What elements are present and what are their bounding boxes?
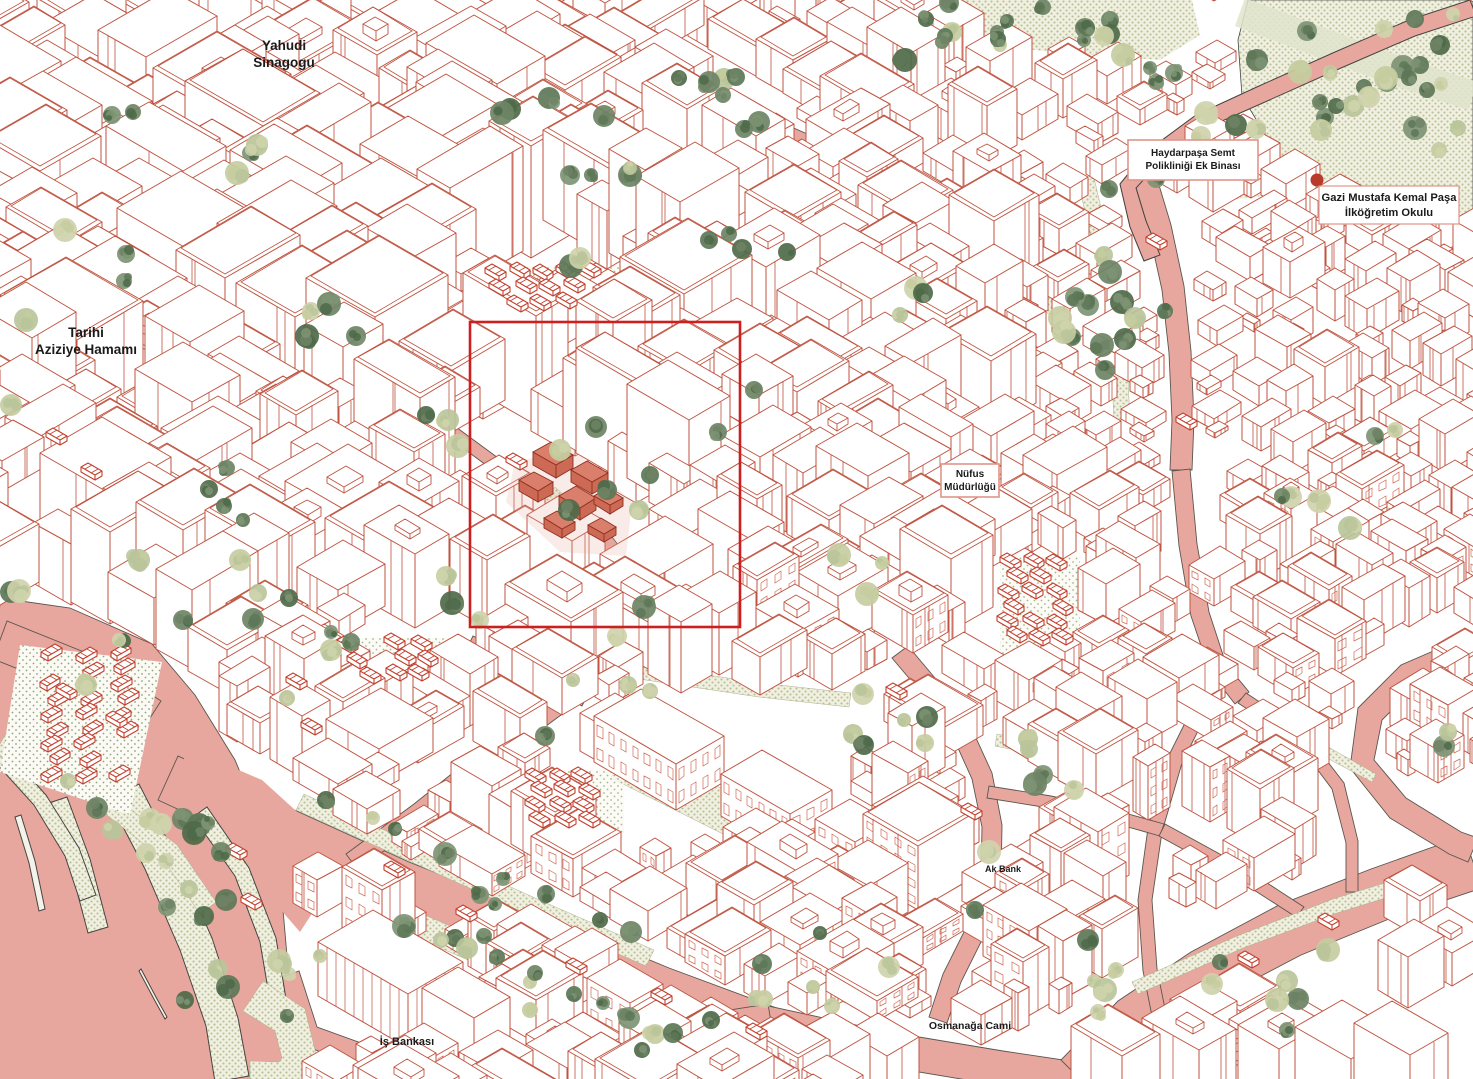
svg-text:Sinagogu: Sinagogu [253, 55, 315, 70]
svg-text:Osmanağa Cami: Osmanağa Cami [929, 1020, 1011, 1032]
svg-text:İş Bankası: İş Bankası [380, 1035, 434, 1048]
svg-text:İlköğretim Okulu: İlköğretim Okulu [1345, 206, 1433, 219]
svg-text:Müdürlüğü: Müdürlüğü [944, 482, 996, 493]
svg-text:Nüfus: Nüfus [956, 469, 985, 480]
svg-text:Gazi Mustafa Kemal Paşa: Gazi Mustafa Kemal Paşa [1322, 192, 1458, 204]
svg-text:Tarihi: Tarihi [68, 325, 104, 340]
svg-text:Polikliniği Ek Binası: Polikliniği Ek Binası [1145, 161, 1240, 172]
svg-text:Yahudi: Yahudi [262, 38, 306, 53]
svg-text:Aziziye Hamamı: Aziziye Hamamı [35, 342, 137, 357]
svg-text:Ak Bank: Ak Bank [985, 864, 1022, 874]
svg-text:Haydarpaşa Semt: Haydarpaşa Semt [1151, 148, 1236, 159]
